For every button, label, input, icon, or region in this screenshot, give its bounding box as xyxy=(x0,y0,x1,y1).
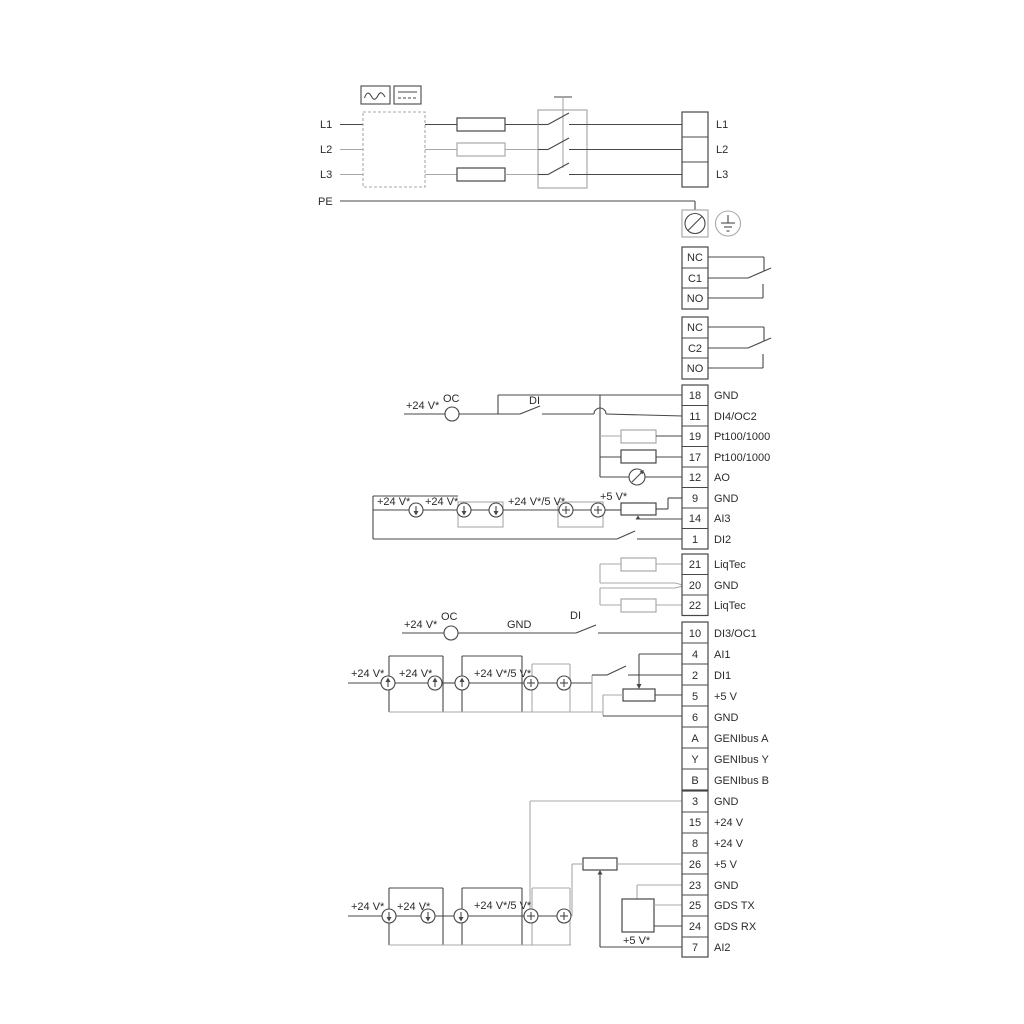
terminal-number: 17 xyxy=(689,452,701,464)
terminal-label: LiqTec xyxy=(714,600,746,612)
terminal-label: DI1 xyxy=(714,670,731,682)
strip1-circuit: +24 V* OC DI xyxy=(373,393,683,539)
terminal-label: +5 V xyxy=(714,691,738,703)
terminal-number: 25 xyxy=(689,900,701,912)
current-source-icon xyxy=(457,503,471,517)
terminal-label: Pt100/1000 xyxy=(714,452,770,464)
relay2-block: NC C2 NO xyxy=(682,317,771,379)
terminal-number: 10 xyxy=(689,628,701,640)
terminal-label: GENIbus Y xyxy=(714,754,769,766)
terminal-number: 21 xyxy=(689,559,701,571)
relay2-terminal-no: NO xyxy=(687,363,704,375)
liqtec-circuit xyxy=(600,558,683,612)
current-source-icon xyxy=(455,676,469,690)
terminal-number: 8 xyxy=(692,838,698,850)
terminal-label: +5 V xyxy=(714,859,738,871)
terminal-label: GND xyxy=(714,796,739,808)
annotation-di: DI xyxy=(529,395,540,407)
terminal-number: 11 xyxy=(689,411,700,423)
terminal-strip-1: 18 GND 11 DI4/OC2 19 Pt100/1000 17 Pt100… xyxy=(682,385,770,549)
terminal-label: LiqTec xyxy=(714,559,746,571)
annotation-24v: +24 V* xyxy=(406,400,440,412)
fuse-l2 xyxy=(457,143,505,156)
voltage-source-icon xyxy=(557,676,571,690)
terminal-number: 24 xyxy=(689,921,701,933)
annotation-24v: +24 V* xyxy=(351,668,385,680)
terminal-label: Pt100/1000 xyxy=(714,431,770,443)
mains-input-label-pe: PE xyxy=(318,196,333,208)
current-source-icon xyxy=(409,503,423,517)
pt100-resistor-2 xyxy=(621,450,656,463)
terminal-label: GND xyxy=(714,712,739,724)
fuse-l3 xyxy=(457,168,505,181)
potentiometer xyxy=(623,689,655,701)
terminal-label: GND xyxy=(714,880,739,892)
annotation-5v: +5 V* xyxy=(623,935,651,947)
current-source-icon xyxy=(381,676,395,690)
liqtec-resistor-1 xyxy=(621,558,656,571)
voltage-source-icon xyxy=(559,503,573,517)
terminal-label: DI2 xyxy=(714,534,731,546)
annotation-24v: +24 V* xyxy=(351,901,385,913)
mains-output-label-l3: L3 xyxy=(716,169,728,181)
annotation-5v: +5 V* xyxy=(600,491,628,503)
potentiometer xyxy=(621,503,656,515)
terminal-number: 26 xyxy=(689,859,701,871)
relay2-terminal-nc: NC xyxy=(687,322,703,334)
terminal-strip-3: 10 DI3/OC1 4 AI1 2 DI1 5 +5 V 6 GND A GE… xyxy=(682,622,769,790)
meter-icon xyxy=(629,469,645,485)
terminal-label: GENIbus B xyxy=(714,775,769,787)
terminal-number: 1 xyxy=(692,534,698,546)
terminal-number: 7 xyxy=(692,942,698,954)
terminal-label: AI1 xyxy=(714,649,731,661)
terminal-number: 18 xyxy=(689,390,701,402)
filter-box xyxy=(363,112,425,187)
terminal-label: AI3 xyxy=(714,513,731,525)
potentiometer xyxy=(583,858,617,870)
strip3-circuit: +24 V* OC GND DI +24 V* +24 V* +24 V*/5 … xyxy=(348,610,683,716)
terminal-number: B xyxy=(691,775,698,787)
terminal-number: 19 xyxy=(689,431,701,443)
terminal-label: GND xyxy=(714,390,739,402)
annotation-24v: +24 V* xyxy=(377,496,411,508)
terminal-label: GND xyxy=(714,580,739,592)
annotation-oc: OC xyxy=(443,393,460,405)
relay1-block: NC C1 NO xyxy=(682,247,771,309)
voltage-source-icon xyxy=(557,909,571,923)
open-collector-icon xyxy=(445,407,459,421)
terminal-number: 9 xyxy=(692,493,698,505)
annotation-24v-5v: +24 V*/5 V* xyxy=(508,496,566,508)
liqtec-resistor-2 xyxy=(621,599,656,612)
relay1-contact xyxy=(708,257,771,298)
annotation-24v: +24 V* xyxy=(399,668,433,680)
relay1-terminal-no: NO xyxy=(687,293,704,305)
gds-sensor: +5 V* xyxy=(622,885,683,947)
contactor xyxy=(538,97,587,188)
terminal-number: A xyxy=(691,733,699,745)
mains-terminal-block xyxy=(682,112,708,187)
dc-icon xyxy=(394,86,421,104)
relay1-terminal-nc: NC xyxy=(687,252,703,264)
annotation-gnd: GND xyxy=(507,619,532,631)
terminal-number: 2 xyxy=(692,670,698,682)
open-collector-icon xyxy=(444,626,458,640)
annotation-24v-5v: +24 V*/5 V* xyxy=(474,900,532,912)
fuse-l1 xyxy=(457,118,505,131)
terminal-strip-2: 21 LiqTec 20 GND 22 LiqTec xyxy=(682,554,746,616)
pt100-resistor-1 xyxy=(621,430,656,443)
terminal-number: 20 xyxy=(689,580,701,592)
voltage-source-icon xyxy=(524,909,538,923)
terminal-label: DI3/OC1 xyxy=(714,628,757,640)
di2-switch xyxy=(617,531,635,539)
mains-input-label-l2: L2 xyxy=(320,144,332,156)
screw-terminal-icon xyxy=(682,210,708,237)
strip4-circuit: +24 V* +24 V* +24 V*/5 V* xyxy=(348,801,683,947)
ai3-source-group: +24 V* +24 V* +24 V*/5 V* +5 V* xyxy=(373,491,683,539)
terminal-strip-4: 3 GND 15 +24 V 8 +24 V 26 +5 V 23 GND 25… xyxy=(682,791,757,957)
di1-switch xyxy=(607,666,626,675)
terminal-label: DI4/OC2 xyxy=(714,411,757,423)
mains-section: L1 L2 L3 PE xyxy=(318,86,741,237)
terminal-number: 23 xyxy=(689,880,701,892)
mains-input-label-l1: L1 xyxy=(320,119,332,131)
current-source-icon xyxy=(421,909,435,923)
voltage-source-icon xyxy=(591,503,605,517)
ac-icon xyxy=(361,86,390,104)
terminal-label: GENIbus A xyxy=(714,733,769,745)
terminal-label: AI2 xyxy=(714,942,731,954)
terminal-number: 4 xyxy=(692,649,698,661)
earth-icon xyxy=(716,211,741,236)
di3-switch xyxy=(576,625,596,633)
annotation-oc: OC xyxy=(441,611,458,623)
terminal-number: 3 xyxy=(692,796,698,808)
terminal-number: 22 xyxy=(689,600,701,612)
annotation-24v-5v: +24 V*/5 V* xyxy=(474,668,532,680)
terminal-number: Y xyxy=(691,754,699,766)
terminal-label: +24 V xyxy=(714,817,744,829)
terminal-number: 6 xyxy=(692,712,698,724)
terminal-number: 12 xyxy=(689,472,701,484)
terminal-label: GDS RX xyxy=(714,921,757,933)
terminal-number: 5 xyxy=(692,691,698,703)
relay1-terminal-c1: C1 xyxy=(688,273,702,285)
wiper-arrow xyxy=(637,684,642,689)
current-source-icon xyxy=(428,676,442,690)
mains-output-label-l2: L2 xyxy=(716,144,728,156)
terminal-label: AO xyxy=(714,472,730,484)
current-source-icon xyxy=(489,503,503,517)
relay2-terminal-c2: C2 xyxy=(688,343,702,355)
annotation-24v: +24 V* xyxy=(404,619,438,631)
wiper-arrow xyxy=(598,870,603,875)
terminal-label: GND xyxy=(714,493,739,505)
mains-input-label-l3: L3 xyxy=(320,169,332,181)
current-source-icon xyxy=(454,909,468,923)
wiring-diagram-canvas: L1 L2 L3 PE xyxy=(0,0,1024,1024)
current-source-icon xyxy=(382,909,396,923)
annotation-24v: +24 V* xyxy=(425,496,459,508)
voltage-source-icon xyxy=(524,676,538,690)
relay2-contact xyxy=(708,327,771,368)
ai1-source-group: +24 V* +24 V* +24 V*/5 V* xyxy=(348,654,683,716)
gds-sensor-box xyxy=(622,899,654,932)
terminal-number: 14 xyxy=(689,513,701,525)
di4-switch xyxy=(520,406,540,414)
terminal-number: 15 xyxy=(689,817,701,829)
mains-output-label-l1: L1 xyxy=(716,119,728,131)
annotation-di: DI xyxy=(570,610,581,622)
schematic-svg: L1 L2 L3 PE xyxy=(0,0,1024,1024)
terminal-label: +24 V xyxy=(714,838,744,850)
terminal-label: GDS TX xyxy=(714,900,755,912)
